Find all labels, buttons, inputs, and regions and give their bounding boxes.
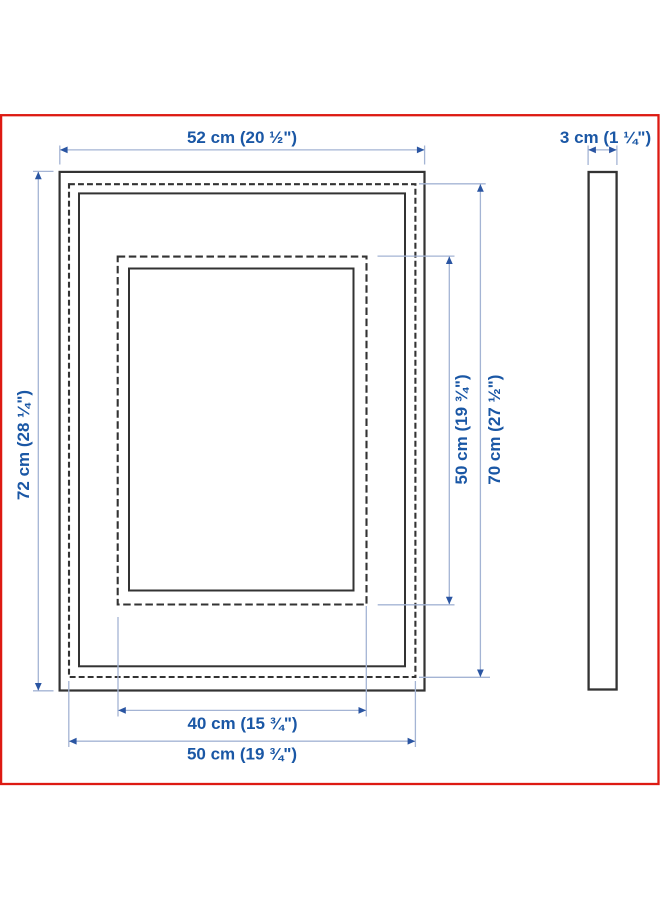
svg-text:52 cm (20 ½"): 52 cm (20 ½") [187,128,297,147]
svg-text:40 cm (15 ¾"): 40 cm (15 ¾") [187,714,297,733]
svg-text:50 cm (19 ¾"): 50 cm (19 ¾") [187,745,297,764]
svg-text:50 cm (19 ¾"): 50 cm (19 ¾") [452,374,471,484]
svg-text:3 cm (1 ¼"): 3 cm (1 ¼") [560,128,651,147]
svg-text:70 cm (27 ½"): 70 cm (27 ½") [485,375,504,485]
svg-text:72 cm (28 ¼"): 72 cm (28 ¼") [14,390,33,500]
